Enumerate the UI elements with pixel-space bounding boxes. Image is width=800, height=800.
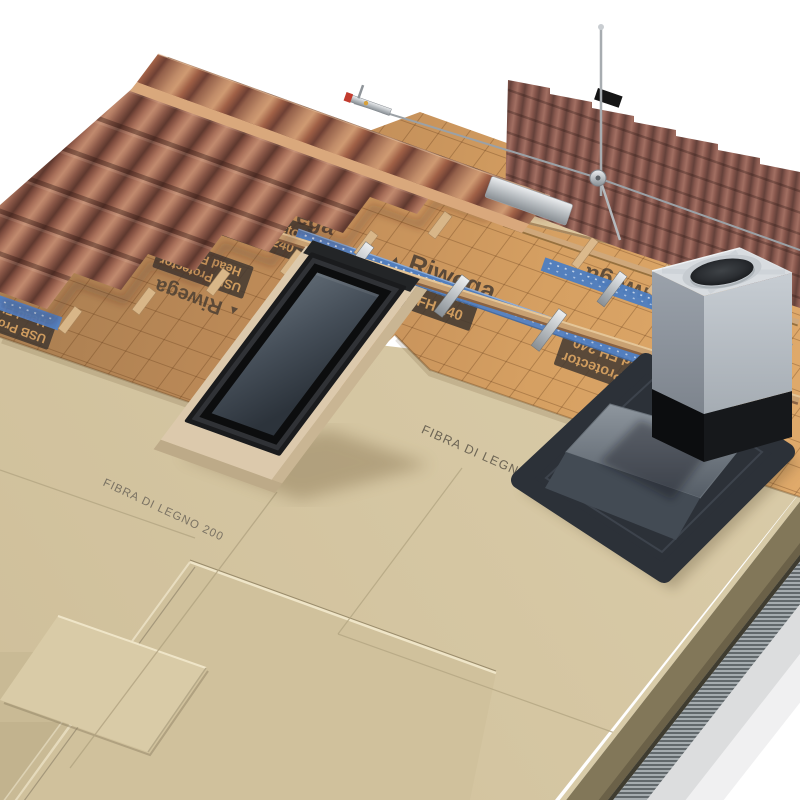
chimney-block-right-face (704, 273, 792, 414)
bracket-pin (357, 85, 364, 99)
lightning-rod-holder (594, 88, 622, 108)
ridge-wire-bracket (344, 81, 396, 117)
mast-tip (598, 24, 604, 30)
scene-svg: FIBRA DI LEGNO 200 FIBRA DI LEGNO 200 ▲ … (0, 0, 800, 800)
clamp-bolt (596, 176, 601, 181)
roof-system-render: FIBRA DI LEGNO 200 FIBRA DI LEGNO 200 ▲ … (0, 0, 800, 800)
chimney-block-left-face (652, 271, 704, 414)
